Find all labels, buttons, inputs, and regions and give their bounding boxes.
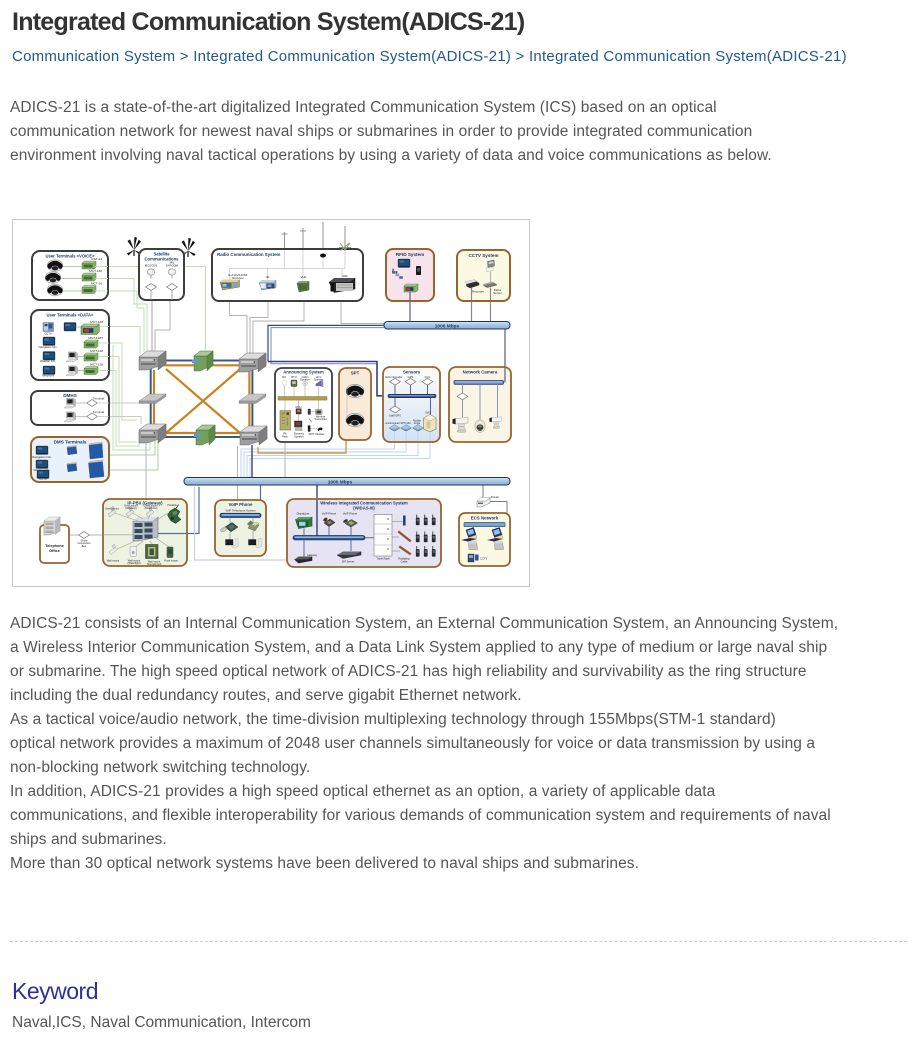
svg-text:Weather Info.: Weather Info. [40, 359, 56, 363]
svg-text:VHF: VHF [301, 275, 307, 279]
svg-text:Desk mount: Desk mount [105, 508, 119, 511]
svg-text:Transmitter: Transmitter [314, 418, 327, 421]
svg-text:Echo Sounder: Echo Sounder [385, 375, 402, 379]
svg-text:Navigation Info.: Navigation Info. [39, 345, 58, 349]
svg-text:Gateway: Gateway [307, 553, 318, 557]
svg-text:VoIP Phone: VoIP Phone [322, 512, 337, 516]
svg-text:Receiver: Receiver [232, 276, 243, 280]
svg-text:CCTV: CCTV [480, 557, 488, 561]
svg-text:Speaker: Speaker [294, 434, 304, 438]
svg-text:Wall mount: Wall mount [107, 560, 120, 563]
svg-text:MCT-128: MCT-128 [89, 269, 102, 273]
svg-text:(WIDAS-III): (WIDAS-III) [353, 505, 375, 510]
svg-text:(Wireless): (Wireless) [125, 507, 136, 510]
svg-text:Angle: Angle [414, 422, 421, 425]
svg-text:1000 Mbps: 1000 Mbps [435, 324, 460, 330]
svg-text:MCT-128: MCT-128 [90, 349, 103, 353]
svg-text:DMS Terminals: DMS Terminals [54, 440, 87, 445]
svg-text:MCT-128T: MCT-128T [88, 336, 103, 340]
svg-text:WHT Handset: WHT Handset [309, 433, 325, 436]
svg-text:VoIP Telephone System: VoIP Telephone System [225, 509, 256, 513]
svg-text:Portable: Portable [167, 504, 177, 507]
svg-text:Staff GPS: Staff GPS [389, 413, 401, 417]
svg-text:Navigation Info.: Navigation Info. [32, 455, 52, 459]
svg-text:User Terminals <DATA>: User Terminals <DATA> [46, 313, 94, 318]
svg-text:Sensors: Sensors [403, 370, 421, 375]
svg-text:UHF: UHF [342, 274, 348, 278]
svg-text:MCSCDS: MCSCDS [145, 264, 158, 268]
svg-text:ODU: ODU [425, 411, 431, 415]
svg-text:RST-24: RST-24 [92, 257, 103, 261]
svg-text:Flush mount: Flush mount [164, 560, 178, 563]
svg-text:VoIP Phone: VoIP Phone [343, 512, 358, 516]
svg-text:Router: Router [491, 495, 499, 499]
svg-text:User Terminals <VOICE>: User Terminals <VOICE> [45, 254, 95, 259]
svg-text:SIP Server: SIP Server [342, 560, 355, 564]
svg-text:SPT: SPT [351, 371, 360, 376]
svg-text:Rack: Rack [282, 434, 289, 438]
svg-text:RFID System: RFID System [396, 252, 424, 257]
svg-text:Telephone: Telephone [42, 374, 55, 378]
svg-text:Server: Server [493, 291, 502, 295]
svg-text:(Watertight): (Watertight) [128, 562, 141, 565]
svg-text:CCTV System: CCTV System [468, 253, 498, 258]
svg-text:Terminal: Terminal [93, 410, 104, 414]
svg-text:DMHS: DMHS [63, 393, 77, 398]
svg-text:Network Camera: Network Camera [463, 370, 498, 375]
svg-text:(Direct line): (Direct line) [145, 507, 158, 510]
svg-text:RU: RU [282, 375, 286, 379]
svg-text:Terminal: Terminal [93, 396, 104, 400]
svg-text:CCTV: CCTV [39, 477, 47, 481]
svg-text:(Soundproof): (Soundproof) [147, 563, 162, 566]
svg-text:Anemometer SPH-130: Anemometer SPH-130 [385, 422, 411, 425]
svg-text:HF: HF [266, 275, 270, 279]
svg-text:1000 Mbps: 1000 Mbps [328, 480, 353, 486]
svg-text:MCT-128: MCT-128 [90, 363, 103, 367]
svg-text:MCT-128: MCT-128 [90, 320, 103, 324]
svg-text:VoIP Phone: VoIP Phone [229, 502, 254, 507]
svg-text:Office: Office [49, 549, 60, 553]
svg-text:ECS Network: ECS Network [471, 516, 499, 521]
svg-text:Dispatcher: Dispatcher [297, 512, 310, 516]
svg-text:Cable: Cable [401, 559, 408, 563]
svg-text:BTU: BTU [291, 375, 296, 379]
svg-text:Radio Communication System: Radio Communication System [217, 252, 281, 257]
svg-text:Trunk Rack: Trunk Rack [376, 557, 390, 561]
svg-text:MCU: MCU [296, 405, 302, 409]
svg-text:Box: Box [82, 544, 87, 548]
svg-text:MCT-16: MCT-16 [91, 282, 102, 286]
svg-text:Recorder: Recorder [472, 290, 484, 294]
svg-text:SATCOM: SATCOM [166, 264, 179, 268]
svg-text:Telephone: Telephone [45, 544, 64, 548]
svg-text:Announcing System: Announcing System [283, 370, 324, 375]
svg-text:CCTV: CCTV [44, 332, 52, 336]
